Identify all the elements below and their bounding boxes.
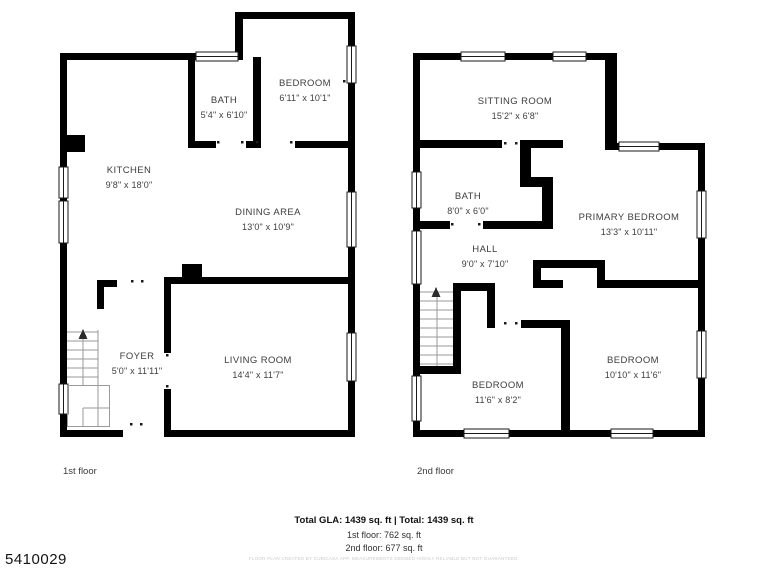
room-name: BEDROOM — [472, 378, 524, 393]
room-label-bedroom-1st: BEDROOM 6'11" x 10'1" — [279, 76, 331, 106]
room-name: BATH — [201, 93, 248, 108]
room-dimensions: 13'3" x 10'11" — [579, 225, 680, 240]
room-name: BEDROOM — [605, 353, 662, 368]
room-label-foyer: FOYER 5'0" x 11'11" — [112, 349, 163, 379]
room-name: FOYER — [112, 349, 163, 364]
room-dimensions: 11'6" x 8'2" — [472, 393, 524, 408]
room-dimensions: 15'2" x 6'8" — [478, 109, 552, 124]
floor1-stairs — [67, 329, 110, 427]
room-dimensions: 8'0" x 6'0" — [447, 204, 489, 219]
floor-caption-1st: 1st floor — [63, 466, 97, 477]
room-label-primary-bedroom: PRIMARY BEDROOM 13'3" x 10'11" — [579, 210, 680, 240]
room-dimensions: 14'4" x 11'7" — [224, 368, 292, 383]
floor2-stairs — [420, 287, 453, 366]
room-label-kitchen: KITCHEN 9'8" x 18'0" — [106, 163, 153, 193]
room-label-bath-1st: BATH 5'4" x 6'10" — [201, 93, 248, 123]
room-name: LIVING ROOM — [224, 353, 292, 368]
room-name: PRIMARY BEDROOM — [579, 210, 680, 225]
room-dimensions: 10'10" x 11'6" — [605, 368, 662, 383]
room-dimensions: 9'8" x 18'0" — [106, 178, 153, 193]
footer-disclaimer: FLOOR PLAN CREATED BY CUBICASA APP. MEAS… — [0, 556, 768, 561]
room-label-hall: HALL 9'0" x 7'10" — [462, 242, 509, 272]
room-name: DINING AREA — [235, 205, 301, 220]
room-label-dining-area: DINING AREA 13'0" x 10'9" — [235, 205, 301, 235]
room-label-bedroom-right: BEDROOM 10'10" x 11'6" — [605, 353, 662, 383]
room-dimensions: 5'4" x 6'10" — [201, 108, 248, 123]
room-dimensions: 9'0" x 7'10" — [462, 257, 509, 272]
room-name: BATH — [447, 189, 489, 204]
room-name: KITCHEN — [106, 163, 153, 178]
footer-2nd-floor-area: 2nd floor: 677 sq. ft — [0, 543, 768, 553]
floor2-windows — [412, 52, 706, 438]
room-label-bath-2nd: BATH 8'0" x 6'0" — [447, 189, 489, 219]
footer-total-gla: Total GLA: 1439 sq. ft | Total: 1439 sq.… — [0, 515, 768, 526]
stairs-up-arrow-icon — [79, 329, 88, 339]
room-dimensions: 6'11" x 10'1" — [279, 91, 331, 106]
room-label-sitting-room: SITTING ROOM 15'2" x 6'8" — [478, 94, 552, 124]
floorplan-image: KITCHEN 9'8" x 18'0" BATH 5'4" x 6'10" B… — [0, 0, 768, 576]
room-label-living-room: LIVING ROOM 14'4" x 11'7" — [224, 353, 292, 383]
footer-1st-floor-area: 1st floor: 762 sq. ft — [0, 530, 768, 540]
floor-caption-2nd: 2nd floor — [417, 466, 454, 477]
room-label-bedroom-left: BEDROOM 11'6" x 8'2" — [472, 378, 524, 408]
room-name: HALL — [462, 242, 509, 257]
room-name: BEDROOM — [279, 76, 331, 91]
room-dimensions: 13'0" x 10'9" — [235, 220, 301, 235]
floorplan-drawing — [0, 0, 768, 576]
room-dimensions: 5'0" x 11'11" — [112, 364, 163, 379]
photo-id: 5410029 — [5, 551, 67, 568]
room-name: SITTING ROOM — [478, 94, 552, 109]
